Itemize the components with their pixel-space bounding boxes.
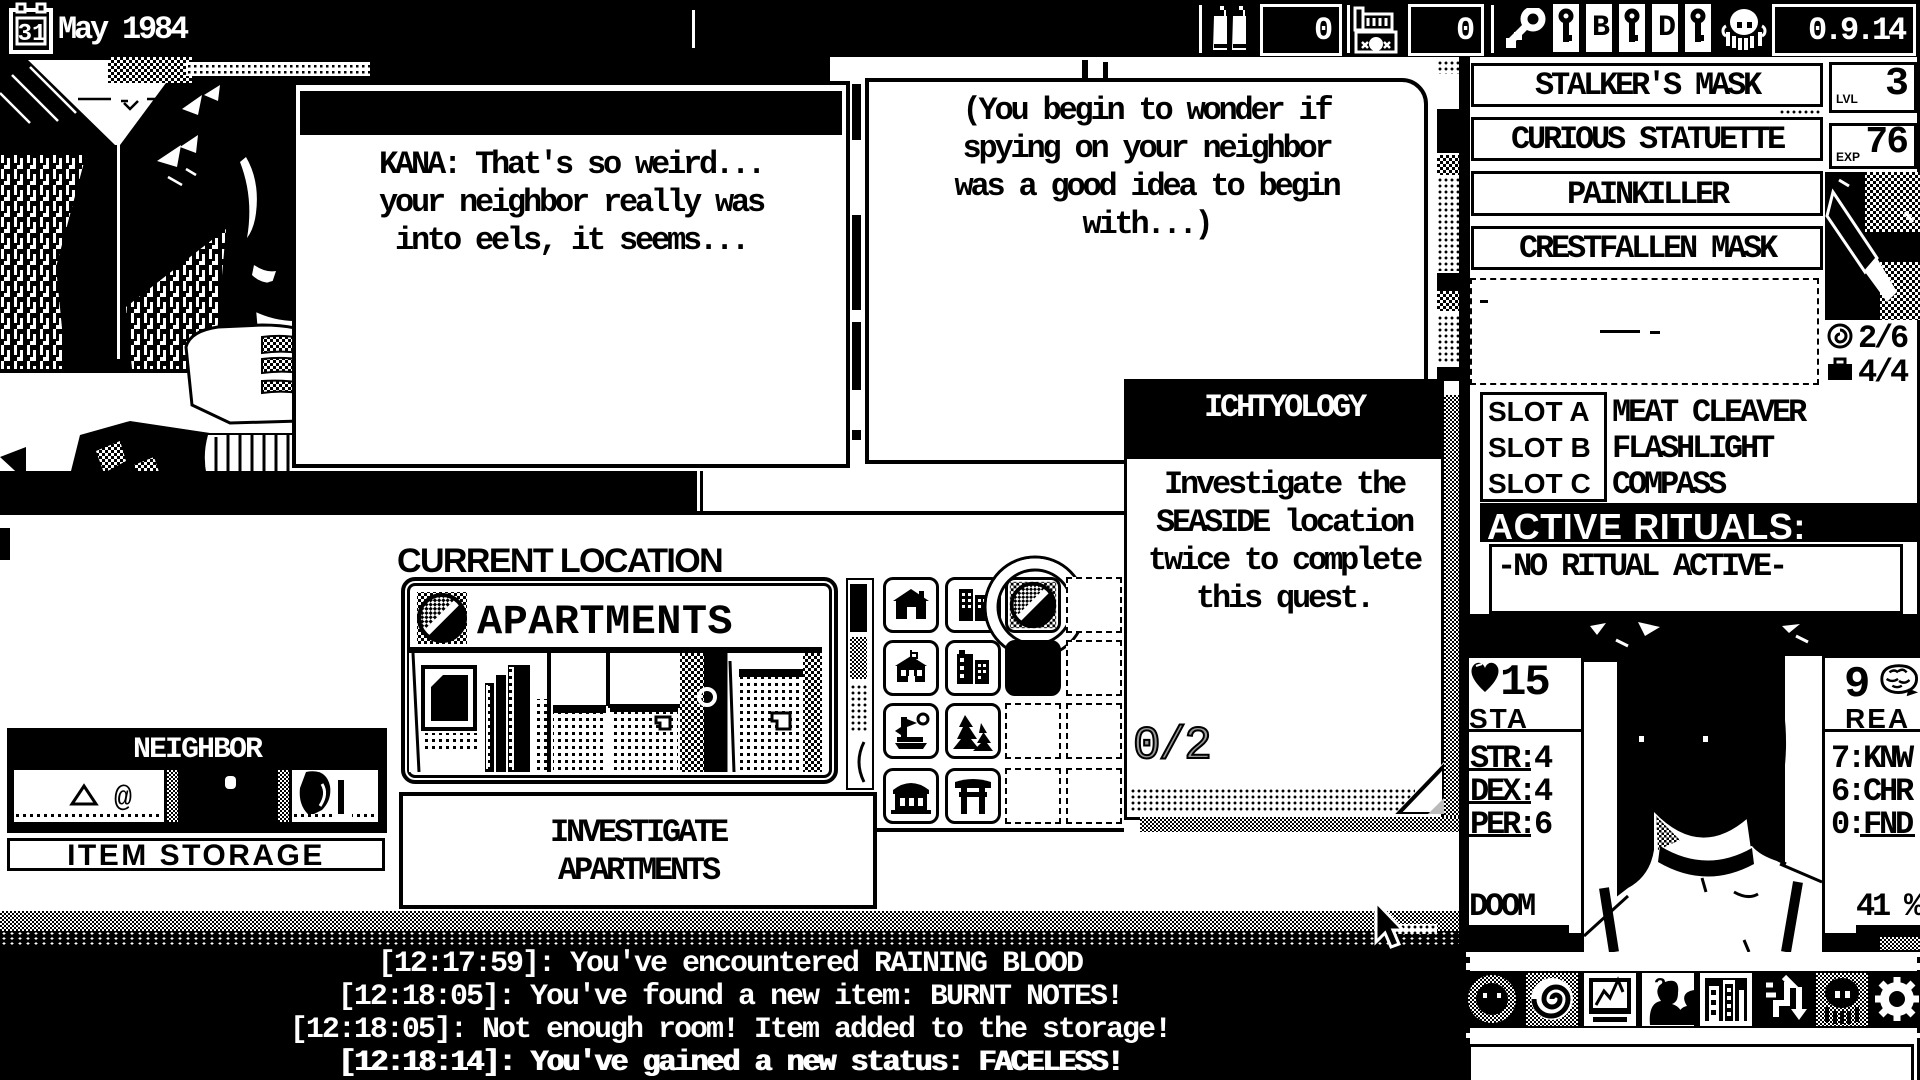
svg-text:31: 31 — [18, 21, 47, 48]
svg-text:?: ? — [1654, 975, 1666, 997]
svg-text:@: @ — [114, 782, 132, 816]
